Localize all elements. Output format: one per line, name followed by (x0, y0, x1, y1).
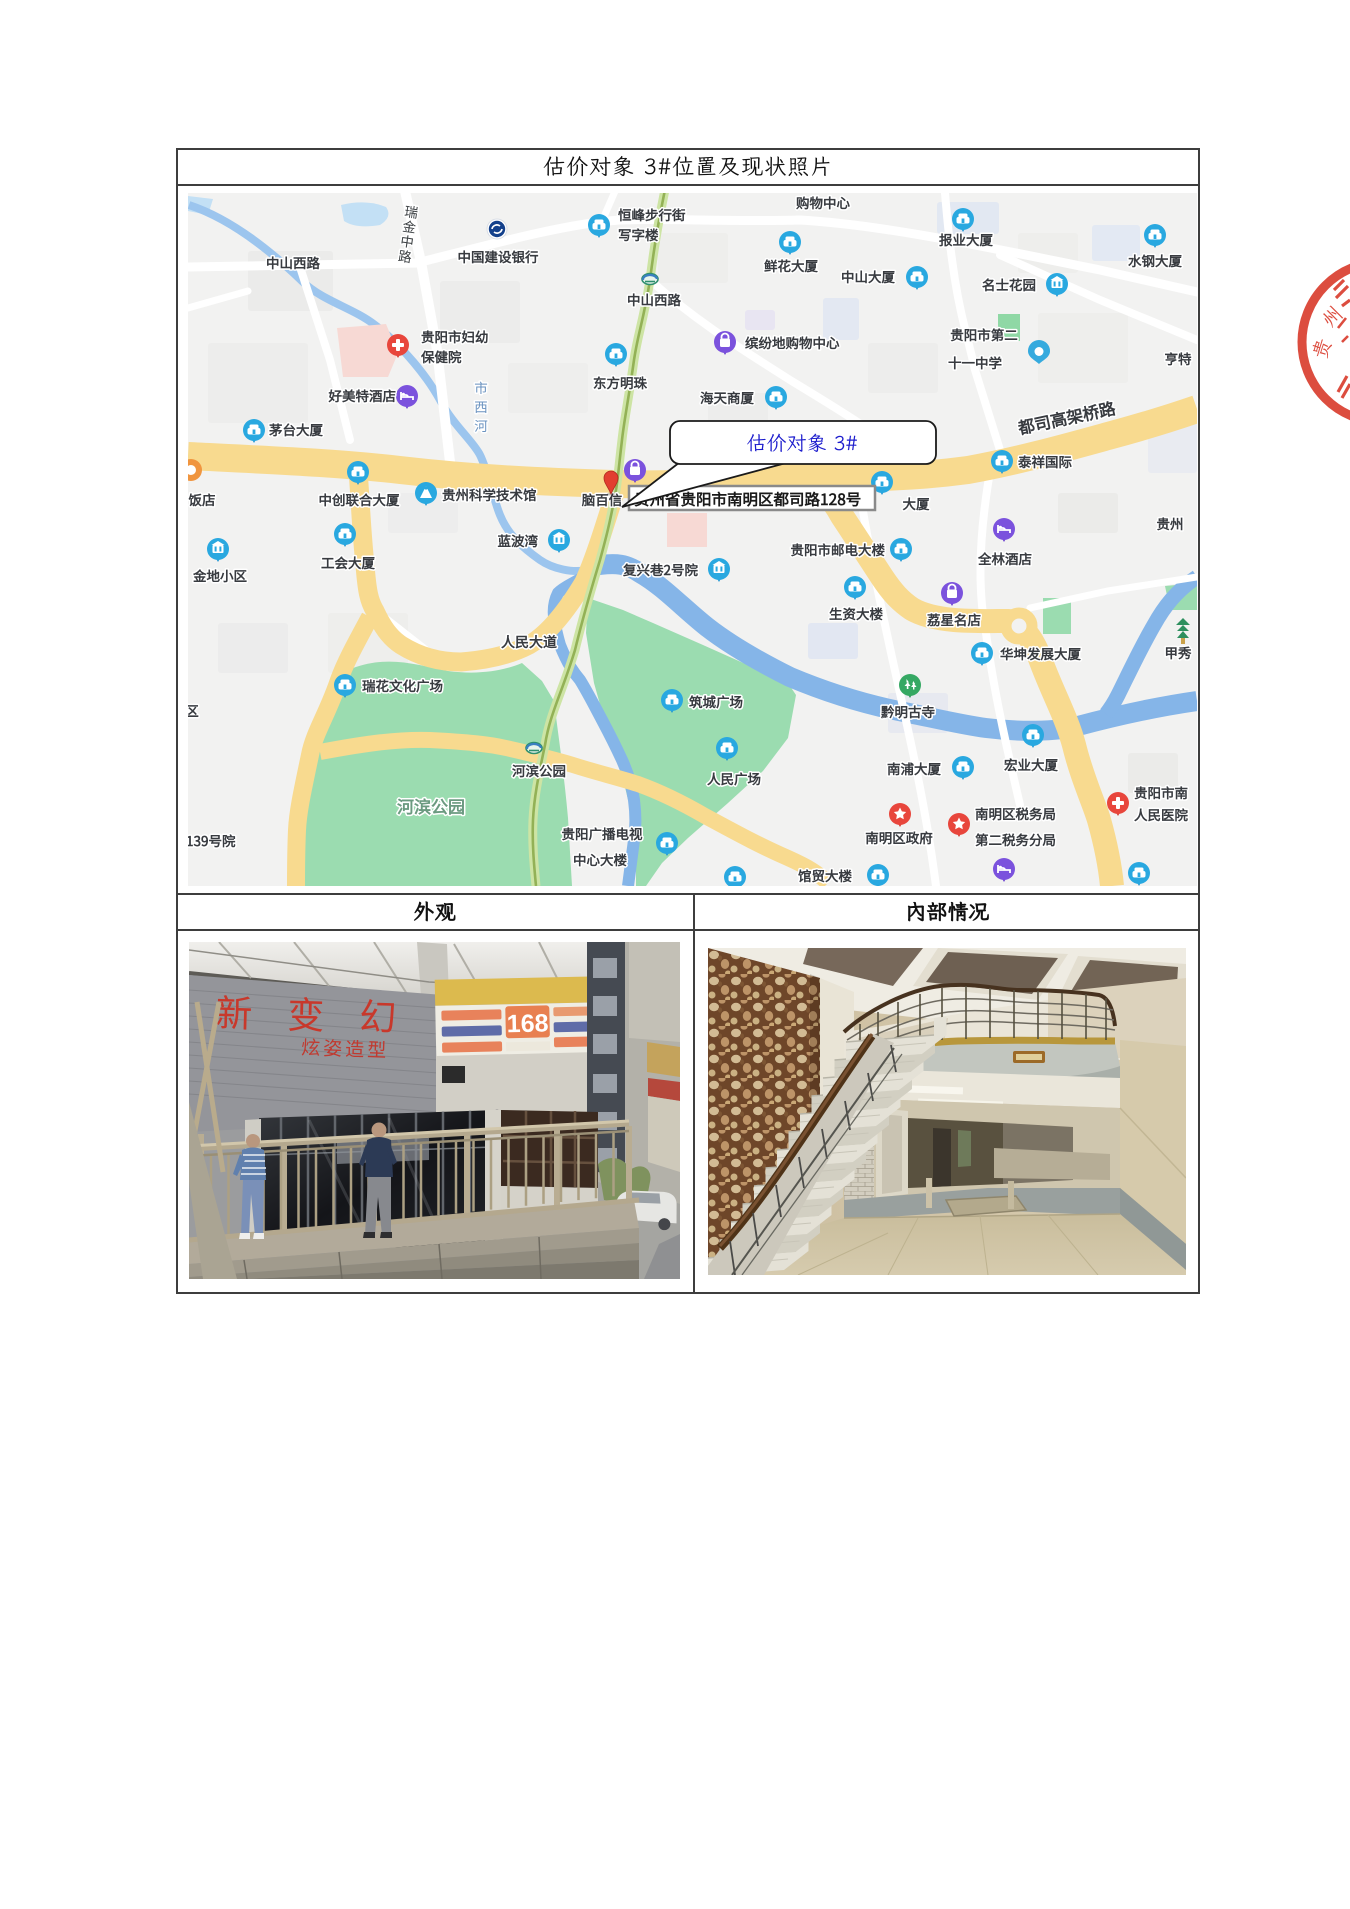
svg-text:人民大道: 人民大道 (501, 632, 557, 652)
svg-text:购物中心: 购物中心 (796, 193, 850, 212)
svg-text:南明区政府: 南明区政府 (865, 827, 933, 847)
svg-text:馆贸大楼: 馆贸大楼 (798, 865, 852, 885)
svg-text:瑞花文化广场: 瑞花文化广场 (362, 675, 443, 695)
svg-text:168: 168 (506, 1009, 548, 1038)
svg-text:河滨公园: 河滨公园 (397, 793, 465, 818)
svg-text:华坤发展大厦: 华坤发展大厦 (1000, 643, 1081, 663)
svg-text:人民广场: 人民广场 (707, 768, 761, 788)
svg-text:中山大厦: 中山大厦 (841, 266, 895, 286)
svg-text:南明区税务局: 南明区税务局 (975, 803, 1056, 823)
svg-text:新变幻: 新变幻 (215, 988, 432, 1043)
svg-text:区: 区 (188, 700, 199, 720)
svg-text:荔星名店: 荔星名店 (926, 609, 981, 629)
svg-text:写字楼: 写字楼 (618, 224, 659, 244)
svg-text:河滨公园: 河滨公园 (512, 760, 566, 780)
svg-text:宏业大厦: 宏业大厦 (1004, 754, 1058, 774)
svg-text:生资大楼: 生资大楼 (829, 603, 883, 623)
svg-text:好美特酒店: 好美特酒店 (328, 385, 397, 405)
svg-text:名士花园: 名士花园 (982, 274, 1036, 294)
svg-text:蓝波湾: 蓝波湾 (498, 530, 539, 550)
svg-text:复兴巷2号院: 复兴巷2号院 (622, 559, 698, 579)
svg-text:贵阳市第二: 贵阳市第二 (950, 324, 1018, 344)
svg-text:黔明古寺: 黔明古寺 (881, 701, 935, 721)
svg-text:贵阳市妇幼: 贵阳市妇幼 (421, 326, 489, 346)
svg-text:估价对象 3#: 估价对象 3# (747, 429, 858, 456)
svg-text:东方明珠: 东方明珠 (593, 372, 647, 392)
svg-text:中山西路: 中山西路 (266, 252, 320, 272)
svg-text:亨特: 亨特 (1165, 348, 1193, 368)
svg-text:河: 河 (474, 415, 488, 435)
svg-text:工会大厦: 工会大厦 (321, 552, 375, 572)
svg-text:南浦大厦: 南浦大厦 (887, 758, 941, 778)
svg-text:保健院: 保健院 (420, 346, 462, 366)
svg-text:贵: 贵 (1305, 334, 1337, 362)
svg-text:贵阳广播电视: 贵阳广播电视 (562, 823, 643, 843)
svg-text:人民医院: 人民医院 (1134, 804, 1188, 824)
svg-text:中山西路: 中山西路 (627, 289, 681, 309)
svg-text:泰祥国际: 泰祥国际 (1017, 451, 1072, 471)
svg-text:中国建设银行: 中国建设银行 (458, 246, 539, 266)
svg-text:茅台大厦: 茅台大厦 (269, 419, 323, 439)
svg-text:筑城广场: 筑城广场 (689, 691, 743, 711)
svg-text:报业大厦: 报业大厦 (939, 229, 993, 249)
svg-text:炫姿造型: 炫姿造型 (301, 1035, 390, 1063)
svg-text:脑百信: 脑百信 (582, 489, 623, 509)
svg-text:缤纷地购物中心: 缤纷地购物中心 (745, 332, 840, 352)
svg-text:139号院: 139号院 (188, 830, 236, 850)
svg-text:恒峰步行街: 恒峰步行街 (618, 204, 686, 224)
svg-text:贵阳市邮电大楼: 贵阳市邮电大楼 (791, 539, 886, 559)
svg-text:贵州: 贵州 (1157, 513, 1184, 533)
svg-text:海天商厦: 海天商厦 (700, 387, 754, 407)
svg-text:大厦: 大厦 (903, 493, 931, 513)
svg-text:贵州科学技术馆: 贵州科学技术馆 (442, 484, 537, 504)
svg-text:十一中学: 十一中学 (948, 352, 1002, 372)
svg-text:中心大楼: 中心大楼 (573, 849, 627, 869)
svg-text:第二税务分局: 第二税务分局 (975, 829, 1056, 849)
svg-text:中创联合大厦: 中创联合大厦 (319, 489, 400, 509)
svg-text:饭店: 饭店 (188, 489, 216, 509)
svg-text:贵阳市南: 贵阳市南 (1134, 782, 1188, 802)
svg-text:金地小区: 金地小区 (192, 565, 247, 585)
svg-text:市: 市 (474, 377, 488, 397)
svg-text:水钢大厦: 水钢大厦 (1127, 250, 1182, 270)
svg-text:鲜花大厦: 鲜花大厦 (764, 255, 818, 275)
svg-text:全林酒店: 全林酒店 (977, 548, 1032, 568)
svg-text:西: 西 (474, 396, 488, 416)
svg-text:甲秀: 甲秀 (1165, 642, 1193, 662)
